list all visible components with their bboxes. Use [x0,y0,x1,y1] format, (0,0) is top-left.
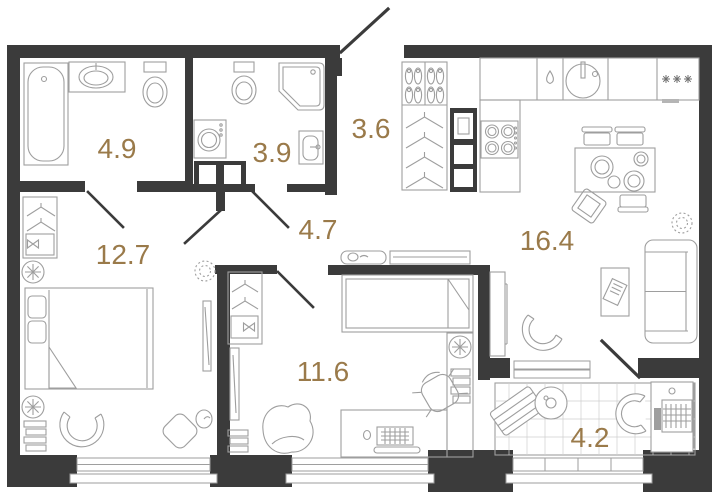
wall-shower-bottom-right [287,184,337,192]
duct-shaft [450,108,477,192]
tv-unit [490,272,507,356]
bathroom-sink [69,62,125,92]
shower-room-furniture [194,62,324,189]
toilet-2 [232,62,256,104]
small-sink [299,131,323,164]
wall-shelves [24,421,46,451]
wall-right [699,45,712,455]
wall-left [7,45,20,487]
balcony-glazing-bottom [506,458,652,483]
nightstand-column [447,333,473,457]
bathroom-door [88,192,123,227]
wall-shower-hall-divider [325,58,337,195]
entrance-door [341,9,388,52]
label-balcony-area: 4.2 [571,422,610,453]
balcony-table [535,387,567,419]
hall-wardrobe [402,62,447,190]
coffee-table [601,268,629,316]
dining-chair [618,195,648,212]
bedroom-window [70,458,217,483]
wall-bottom-right-pier [643,450,712,492]
laundry-cabinet [194,161,246,189]
wall-bottom-left-pier [7,455,77,487]
dining-chair [582,127,612,145]
label-corridor-area: 4.7 [299,214,338,245]
label-kitchen-living-area: 16.4 [520,225,575,256]
plant [672,213,692,233]
wall-room2-top [328,265,490,275]
wall-balcony-left-pier [428,450,513,492]
plant [195,261,215,281]
wall-bath-bottom-left [20,181,85,192]
counter-handle [662,99,679,103]
doors [88,9,639,377]
bean-bag [263,404,313,453]
label-bedroom-area: 12.7 [96,239,151,270]
bedroom-wardrobe [23,197,57,258]
bedroom2-window [286,458,434,483]
wall-top-right [404,45,712,58]
single-bed [342,275,473,332]
bedroom2-wardrobe [228,272,262,344]
living-armchair [522,315,562,350]
wall-top-left [7,45,340,58]
bedroom2-door [278,272,313,307]
ceiling-light [22,396,44,418]
sofa [645,240,697,343]
pouf [160,411,200,451]
balcony-desk [651,382,693,452]
floor-lamp [196,410,212,428]
wall-entrance-stub [334,58,342,76]
bedroom-furniture [22,197,215,451]
fridge-snowflake-icons [662,75,692,83]
toilet [143,62,167,107]
label-shower-room-area: 3.9 [253,137,292,168]
wall-bedroom-door-stub [216,192,225,211]
floor-plan: 4.9 3.9 3.6 4.7 12.7 16.4 11.6 4.2 [0,0,720,494]
kitchen-sink [566,62,600,98]
label-bedroom2-area: 11.6 [297,356,349,387]
wall-balcony-door-left [478,358,510,378]
balcony-door [602,341,639,377]
bedroom-armchair [60,412,104,447]
mirror-2 [230,348,239,420]
balcony-armchair [616,394,646,434]
dining-chair [615,127,645,145]
label-entry-hall-area: 3.6 [352,113,391,144]
bathtub [24,63,68,165]
bedroom-door [185,210,221,243]
double-bed [25,288,153,389]
bedroom2-furniture [228,272,473,457]
desk [341,410,447,457]
dining-chair-tilted [571,188,607,224]
mirror [203,301,211,371]
shower-cabin [279,63,324,110]
wall-shelves [228,430,248,452]
living-balcony-window [514,361,590,378]
sideboard [390,251,470,264]
dining-set [571,127,655,224]
sun-lounger [489,386,544,436]
stove [481,121,518,158]
wall-bath-divider [185,58,193,192]
wall-bath-bottom-right [137,181,193,192]
dishwasher-drop-icon [547,71,554,84]
shower-room-door [253,192,288,227]
hangers [406,112,443,188]
wall-balcony-door-right [638,358,706,378]
console-bench [341,251,386,264]
ceiling-light [22,261,44,283]
bathroom-furniture [24,62,167,165]
floor-plan-canvas: 4.9 3.9 3.6 4.7 12.7 16.4 11.6 4.2 [0,0,720,494]
washing-machine [194,120,226,158]
label-bathroom-area: 4.9 [98,133,137,164]
wall-bottom-pier [210,455,292,487]
